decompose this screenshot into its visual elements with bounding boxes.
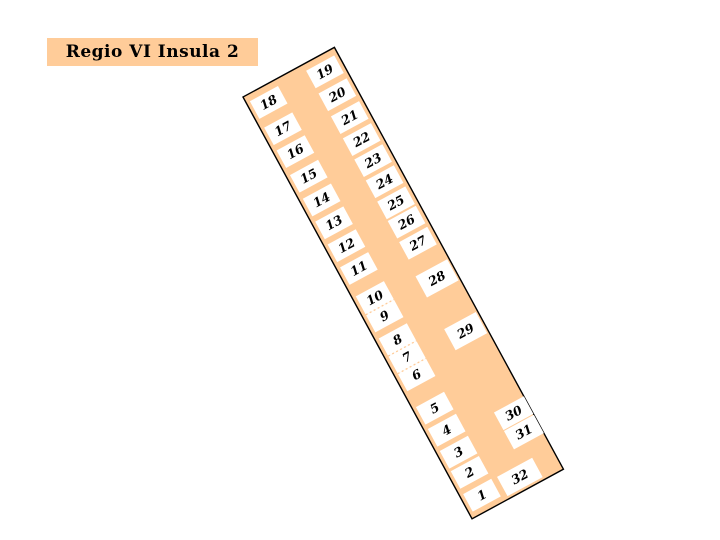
insula-block: 1234567891011121314151617181920212223242… (243, 47, 563, 518)
insula-map: 1234567891011121314151617181920212223242… (0, 0, 720, 540)
insula-map-page: Regio VI Insula 2 1234567891011121314151… (0, 0, 720, 540)
